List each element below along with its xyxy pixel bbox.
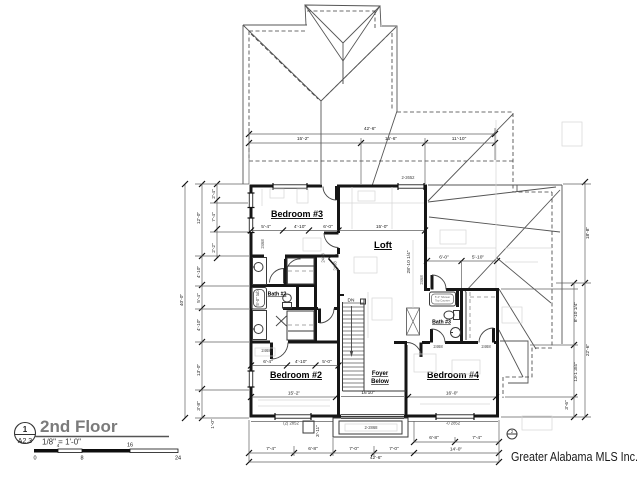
svg-text:28'-10 1/4": 28'-10 1/4" [406,250,412,273]
svg-text:6'-8": 6'-8" [429,435,439,441]
svg-text:5'-4": 5'-4" [261,224,271,230]
svg-text:6'-8": 6'-8" [308,446,318,452]
svg-text:2468: 2468 [260,239,265,249]
svg-text:2468: 2468 [321,253,326,263]
svg-text:5'-0" Shower: 5'-0" Shower [435,295,450,299]
svg-text:0: 0 [33,456,36,462]
svg-text:7'-0": 7'-0" [389,446,399,452]
svg-text:7'-0": 7'-0" [349,446,359,452]
svg-text:Bedroom #3: Bedroom #3 [271,209,323,219]
svg-text:15'-2": 15'-2" [297,136,310,142]
svg-text:2'-2": 2'-2" [211,243,217,253]
svg-text:3'-6": 3'-6" [564,400,570,410]
svg-text:2-2868: 2-2868 [364,425,378,430]
svg-text:40'-0": 40'-0" [179,294,185,307]
svg-text:4'-10": 4'-10" [295,359,308,365]
svg-text:22'-6": 22'-6" [585,344,591,357]
svg-text:2468: 2468 [419,275,424,285]
svg-text:18'-8": 18'-8" [585,227,591,240]
svg-text:15'-6": 15'-6" [385,136,398,142]
svg-text:13-1 3/4": 13-1 3/4" [573,362,579,382]
svg-text:8'-10 1/4": 8'-10 1/4" [573,302,579,323]
svg-text:Greater Alabama MLS Inc.: Greater Alabama MLS Inc. [511,450,638,464]
svg-text:4'-10": 4'-10" [196,266,202,279]
svg-text:8: 8 [80,456,83,462]
svg-text:2468: 2468 [333,261,338,271]
svg-text:Bath #3: Bath #3 [432,320,451,326]
svg-text:15'-2": 15'-2" [288,391,301,397]
svg-text:Foyer: Foyer [372,371,389,377]
svg-text:Bath #2: Bath #2 [268,292,287,298]
svg-text:2nd Floor: 2nd Floor [40,417,118,436]
svg-text:16'10": 16'10" [361,390,375,396]
svg-text:16: 16 [127,443,133,449]
svg-text:2468: 2468 [481,344,491,349]
svg-text:2-2652: 2-2652 [401,175,415,180]
svg-text:Loft: Loft [374,240,393,251]
svg-text:14'-0": 14'-0" [450,447,463,453]
svg-text:1/8" = 1'-0": 1/8" = 1'-0" [42,438,81,447]
svg-text:13'-0": 13'-0" [196,364,202,377]
svg-text:Below: Below [371,379,389,385]
svg-text:3'-11": 3'-11" [315,425,321,437]
svg-text:5'-0": 5'-0" [322,359,332,365]
svg-text:42'-6": 42'-6" [364,126,377,132]
svg-text:A2.3: A2.3 [18,438,33,445]
svg-text:6'-0": 6'-0" [439,255,449,261]
svg-text:4'-10": 4'-10" [294,224,307,230]
svg-text:42'-6": 42'-6" [370,455,383,461]
svg-text:2468: 2468 [433,344,443,349]
svg-text:6'-0": 6'-0" [323,224,333,230]
svg-text:24: 24 [175,456,181,462]
svg-text:12'-0": 12'-0" [196,212,202,225]
svg-text:5'-10": 5'-10" [472,255,485,261]
svg-text:DN: DN [348,298,355,304]
svg-text:Top Counter: Top Counter [435,299,450,303]
svg-text:2'-4": 2'-4" [211,189,217,199]
svg-text:1'-0": 1'-0" [210,419,216,429]
svg-text:11'-10": 11'-10" [452,136,467,142]
svg-text:16'-0": 16'-0" [446,391,459,397]
svg-text:5'-0" tub: 5'-0" tub [255,290,260,306]
svg-text:6'-4": 6'-4" [263,359,273,365]
svg-text:1: 1 [23,425,28,434]
svg-text:5'-4": 5'-4" [196,293,202,303]
svg-text:7'-4": 7'-4" [211,212,217,222]
svg-text:15'-0": 15'-0" [376,224,389,230]
svg-text:3'-8": 3'-8" [196,401,202,411]
svg-text:Bedroom #2: Bedroom #2 [270,370,322,380]
svg-text:Bedroom #4: Bedroom #4 [427,370,479,380]
svg-text:4'-10": 4'-10" [196,319,202,332]
svg-text:2468: 2468 [261,348,271,353]
svg-text:7'-4": 7'-4" [472,435,482,441]
svg-text:7'-4": 7'-4" [266,446,276,452]
